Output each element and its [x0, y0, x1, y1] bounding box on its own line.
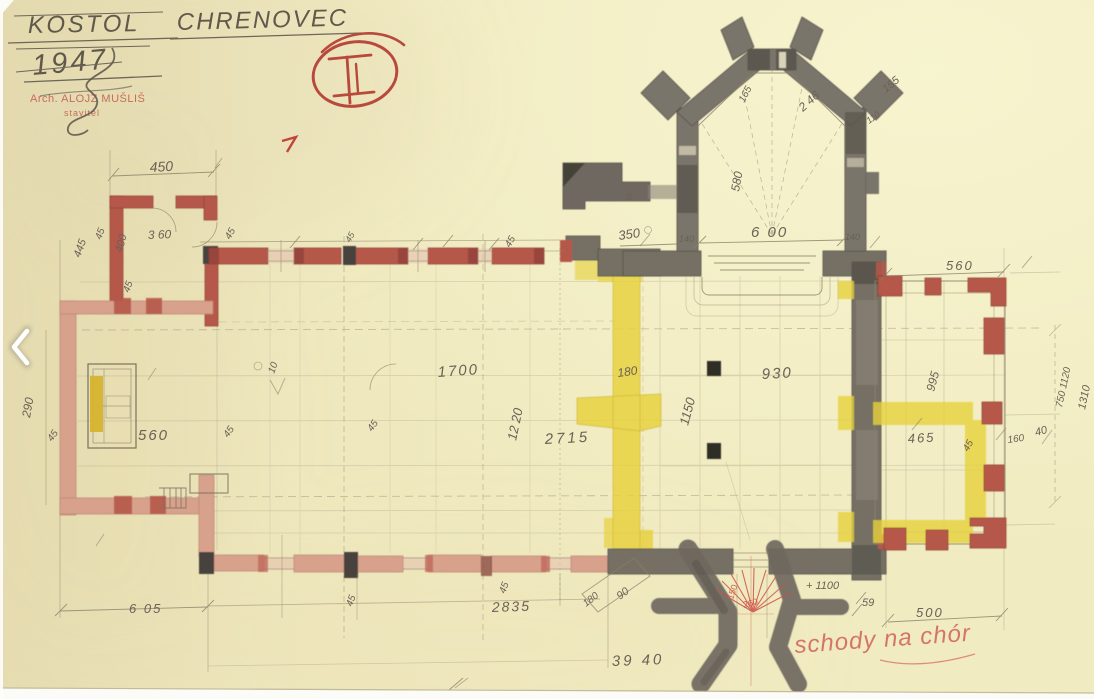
- svg-text:3 60: 3 60: [148, 227, 172, 242]
- svg-text:140: 140: [679, 234, 694, 244]
- svg-text:6 05: 6 05: [129, 601, 162, 616]
- svg-text:+ 1100: + 1100: [806, 580, 840, 592]
- svg-text:39 40: 39 40: [612, 651, 665, 670]
- svg-text:465: 465: [907, 430, 935, 446]
- svg-text:Arch. ALOJZ MUŠLIŠ: Arch. ALOJZ MUŠLIŠ: [30, 92, 145, 105]
- svg-text:560: 560: [138, 427, 169, 444]
- svg-text:450: 450: [149, 158, 173, 175]
- svg-text:500: 500: [916, 605, 944, 620]
- svg-text:1700: 1700: [437, 361, 479, 381]
- svg-text:180: 180: [616, 363, 638, 380]
- svg-text:CHRENOVEC: CHRENOVEC: [176, 5, 348, 36]
- svg-text:2835: 2835: [491, 598, 532, 615]
- svg-text:1947: 1947: [31, 43, 110, 82]
- svg-text:560: 560: [946, 258, 974, 273]
- svg-text:140: 140: [845, 232, 860, 242]
- svg-text:8: 8: [626, 192, 632, 203]
- svg-text:2715: 2715: [543, 429, 590, 448]
- svg-text:350: 350: [617, 225, 641, 243]
- svg-text:930: 930: [761, 364, 793, 383]
- svg-text:6 00: 6 00: [751, 224, 788, 241]
- svg-text:59: 59: [862, 597, 874, 609]
